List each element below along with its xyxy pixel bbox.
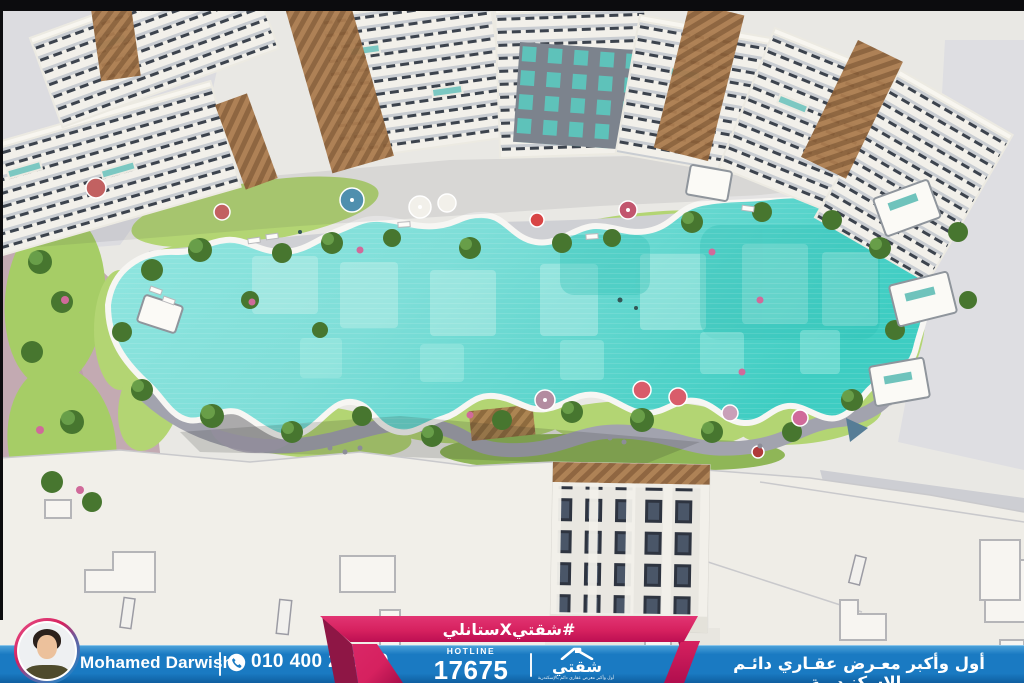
brand-logotype: شقتي <box>540 659 614 675</box>
agent-photo <box>19 623 75 679</box>
agent-avatar <box>14 618 80 683</box>
aerial-render <box>0 0 1024 683</box>
hotline-block: HOTLINE 17675 <box>418 647 524 683</box>
photo-top-border <box>0 0 1024 11</box>
avatar-shirt <box>25 665 69 679</box>
photo-left-border <box>0 0 3 620</box>
divider <box>530 653 532 677</box>
hotline-number: 17675 <box>418 657 524 683</box>
campaign-ribbon: #شقتيXستانلي <box>320 616 698 642</box>
divider <box>219 652 221 676</box>
brand-logo-tagline: أول وأكبر معرض عقاري دائم بالإسكندرية <box>540 677 614 682</box>
brand-logo: شقتي أول وأكبر معرض عقاري دائم بالإسكندر… <box>540 646 614 681</box>
banner-tagline: أول وأكبر معـرض عقـاري دائـم بالإسكنـدري… <box>700 654 1018 683</box>
info-bar: Mohamed Darwish 010 400 270 59 HOTLINE 1… <box>0 645 1024 683</box>
agent-name: Mohamed Darwish <box>80 653 233 673</box>
avatar-face <box>37 635 57 659</box>
real-estate-flyer: #شقتيXستانلي Mohamed Darwish 010 400 270… <box>0 0 1024 683</box>
phone-icon <box>227 653 246 672</box>
avatar-ring <box>17 621 77 681</box>
campaign-hashtag: #شقتيXستانلي <box>443 620 576 639</box>
